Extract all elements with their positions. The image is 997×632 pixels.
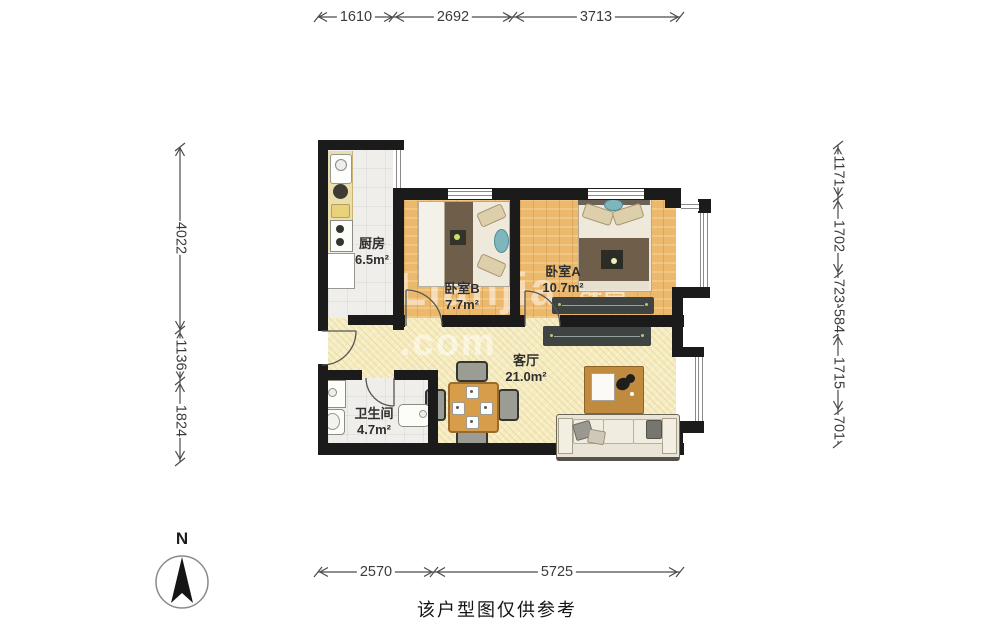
dim-right-1: 1171 xyxy=(829,154,848,187)
bedroom-a-bay-window xyxy=(699,213,709,287)
room-area: 4.7m² xyxy=(354,422,393,438)
dim-left-2: 1136 xyxy=(171,338,190,371)
room-name: 卫生间 xyxy=(354,406,393,421)
living-tv-bench xyxy=(543,326,651,346)
floorplan-canvas: Lianjia .com 链家 xyxy=(0,0,997,632)
kitchen-sink-bowl xyxy=(335,159,347,171)
plate xyxy=(466,416,479,429)
room-name: 卧室A xyxy=(545,264,580,279)
plate xyxy=(452,402,465,415)
bedroom-a-label: 卧室A 10.7m² xyxy=(542,264,583,295)
room-area: 21.0m² xyxy=(505,369,546,385)
kitchen-fridge xyxy=(326,253,355,289)
wall xyxy=(442,315,525,327)
bedroom-b-wardrobe xyxy=(418,201,446,287)
bedroom-b-cushion xyxy=(494,229,509,253)
vanity-faucet xyxy=(328,388,337,397)
stove-burner xyxy=(336,238,344,246)
wall xyxy=(510,196,520,318)
dim-top-1: 1610 xyxy=(337,9,375,26)
wall xyxy=(698,199,711,213)
dim-left-1: 4022 xyxy=(171,221,190,255)
coffee-table-item xyxy=(626,374,635,383)
dim-top-2: 2692 xyxy=(434,9,472,26)
bedroom-b-tray-dot xyxy=(454,234,460,240)
wall xyxy=(665,188,681,208)
bathroom-label: 卫生间 4.7m² xyxy=(354,406,393,437)
sofa-pillow xyxy=(646,420,662,439)
room-name: 卧室B xyxy=(444,281,479,296)
dining-chair xyxy=(456,361,488,382)
dim-right-4: 584 xyxy=(829,308,848,334)
dim-right-6: 701 xyxy=(829,415,848,441)
dim-top-3: 3713 xyxy=(577,9,615,26)
dim-bottom-1: 2570 xyxy=(357,564,395,581)
stove-burner xyxy=(336,225,344,233)
room-name: 厨房 xyxy=(359,236,385,251)
sofa-armrest xyxy=(558,418,573,454)
sofa-armrest xyxy=(662,418,677,454)
coffee-table-dot xyxy=(630,392,634,396)
kitchen-window xyxy=(394,150,404,188)
bedroom-a-cushion xyxy=(604,199,623,211)
wall xyxy=(318,370,362,380)
wall xyxy=(318,140,328,331)
north-label: N xyxy=(176,529,188,549)
room-name: 客厅 xyxy=(513,353,539,368)
sofa-cushion xyxy=(603,419,634,444)
kitchen-appliance xyxy=(331,204,350,218)
dim-left-3: 1824 xyxy=(171,404,190,438)
bedroom-a-bed-foot xyxy=(579,281,649,290)
wall xyxy=(393,315,405,327)
caption: 该户型图仅供参考 xyxy=(417,596,577,622)
living-label: 客厅 21.0m² xyxy=(505,353,546,384)
room-area: 10.7m² xyxy=(542,280,583,296)
plate xyxy=(480,402,493,415)
bedroom-b-label: 卧室B 7.7m² xyxy=(444,281,479,312)
bedroom-b-window xyxy=(448,189,492,199)
bedroom-a-tv-bench xyxy=(552,297,654,314)
bedroom-a-tray-dot xyxy=(611,258,617,264)
plate xyxy=(466,386,479,399)
kitchen-pot xyxy=(333,184,348,199)
sofa-pillow xyxy=(587,429,606,446)
north-compass-icon xyxy=(156,556,208,608)
dim-bottom-2: 5725 xyxy=(538,564,576,581)
wall xyxy=(393,188,404,330)
bathtub-dial xyxy=(419,410,427,418)
living-bay-window xyxy=(694,357,704,421)
bedroom-a-window xyxy=(588,189,644,199)
dim-right-5: 1715 xyxy=(829,356,848,390)
dim-right-2: 1702 xyxy=(829,219,848,253)
wall xyxy=(428,370,438,450)
wall xyxy=(318,140,404,150)
dim-right-3: 723 xyxy=(829,278,848,304)
dining-chair xyxy=(498,389,519,421)
room-area: 6.5m² xyxy=(355,252,389,268)
wall xyxy=(672,347,704,357)
bay-window-link xyxy=(681,202,699,211)
coffee-table-pad xyxy=(591,373,615,401)
wall xyxy=(560,315,684,327)
room-area: 7.7m² xyxy=(444,297,479,313)
kitchen-label: 厨房 6.5m² xyxy=(355,236,389,267)
